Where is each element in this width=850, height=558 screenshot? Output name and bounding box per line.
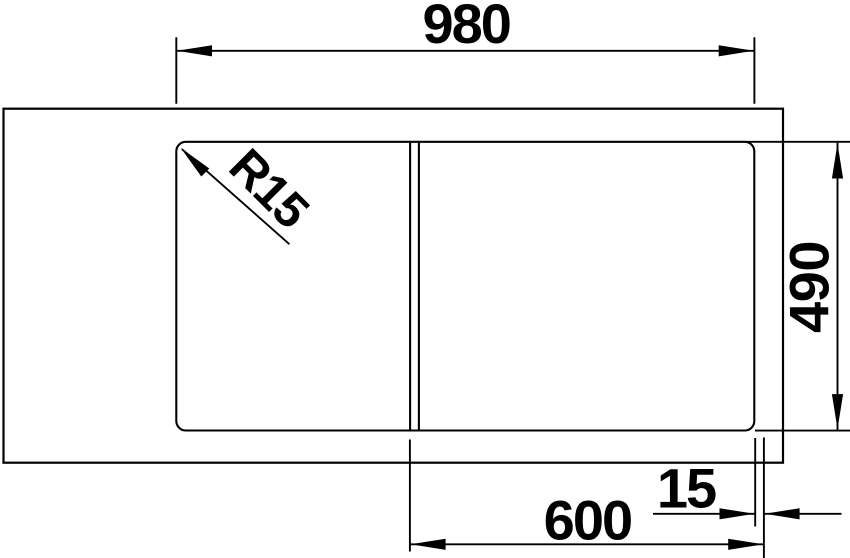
- svg-text:15: 15: [657, 457, 716, 520]
- svg-text:R15: R15: [219, 139, 319, 239]
- svg-text:980: 980: [422, 0, 509, 55]
- svg-text:600: 600: [544, 489, 631, 552]
- svg-text:490: 490: [777, 241, 840, 333]
